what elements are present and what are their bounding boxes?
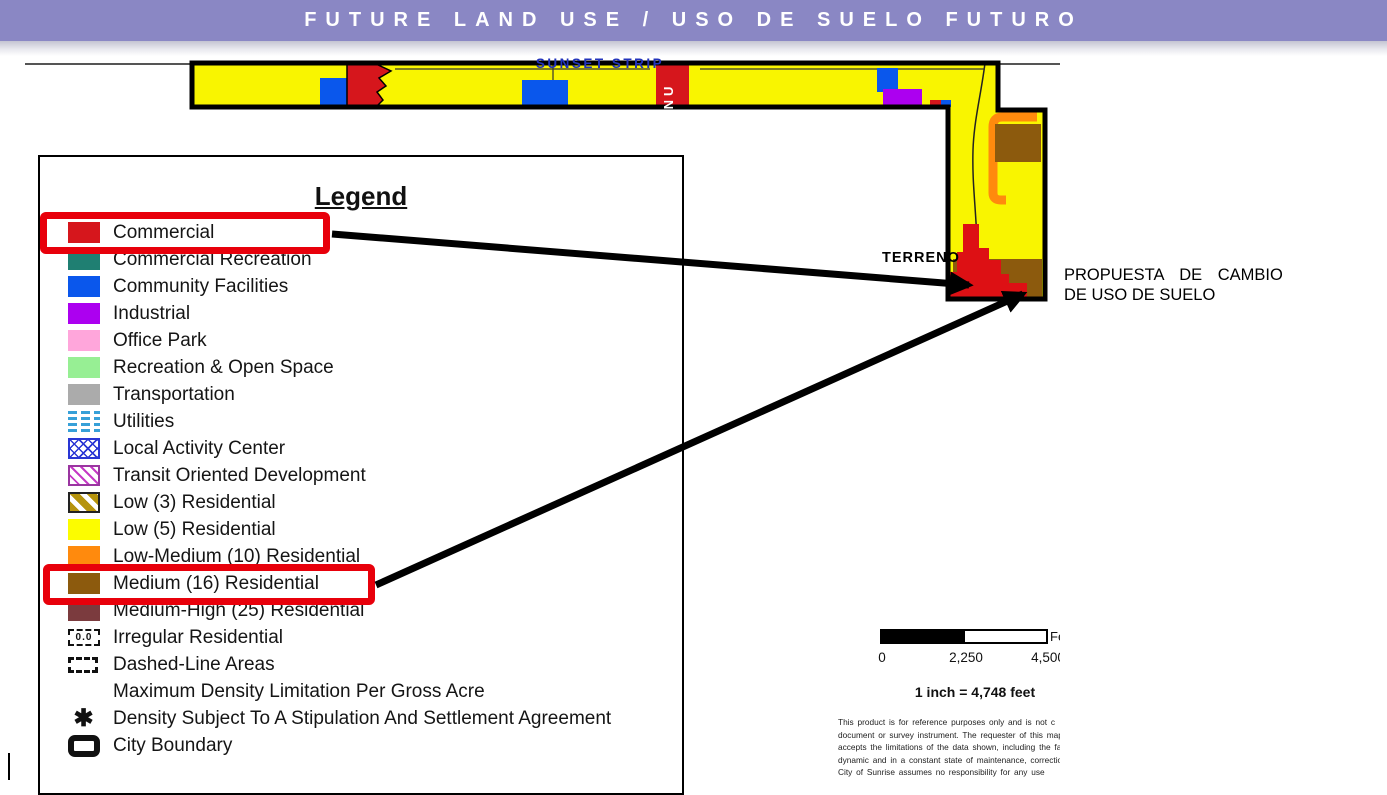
- scale-ratio-text: 1 inch = 4,748 feet: [915, 684, 1035, 700]
- legend-item: Transit Oriented Development: [68, 462, 682, 489]
- map-patch-commercial: [930, 100, 941, 107]
- solid-swatch-icon: [68, 303, 100, 324]
- solid-swatch-icon: [68, 519, 100, 540]
- scalebar-tick: 2,250: [949, 650, 983, 665]
- legend-item: Industrial: [68, 300, 682, 327]
- legend-item-label: Dashed-Line Areas: [113, 654, 275, 676]
- legend-item-label: Utilities: [113, 411, 174, 433]
- map-patch-community: [522, 80, 568, 107]
- legend-item: Low (5) Residential: [68, 516, 682, 543]
- legend-item-label: Transportation: [113, 384, 235, 406]
- legend-items: CommercialCommercial RecreationCommunity…: [40, 219, 682, 759]
- header-banner: FUTURE LAND USE / USO DE SUELO FUTURO: [0, 0, 1387, 41]
- asterisk-swatch-icon: ✱: [68, 708, 100, 729]
- scalebar-tick: 0: [878, 650, 886, 665]
- legend-item-label: Industrial: [113, 303, 190, 325]
- legend-item: Community Facilities: [68, 273, 682, 300]
- scalebar: [880, 629, 1048, 644]
- legend-item-label: Local Activity Center: [113, 438, 285, 460]
- street-label: SUNSET STRIP: [536, 56, 664, 71]
- legend-item-label: Recreation & Open Space: [113, 357, 334, 379]
- map-road-orange: [993, 117, 1037, 200]
- header-shadow: [0, 41, 1387, 56]
- legend-item: Transportation: [68, 381, 682, 408]
- legend-item: Office Park: [68, 327, 682, 354]
- lac-swatch-icon: [68, 438, 100, 459]
- proposal-line1: PROPUESTA DE CAMBIO: [1064, 265, 1299, 285]
- disclaimer-line: document or survey instrument. The reque…: [838, 729, 1060, 742]
- legend-item: ✱Density Subject To A Stipulation And Se…: [68, 705, 682, 732]
- legend-item: Utilities: [68, 408, 682, 435]
- map-patch-commercial: [347, 63, 391, 107]
- solid-swatch-icon: [68, 357, 100, 378]
- legend-item-label: Maximum Density Limitation Per Gross Acr…: [113, 681, 485, 703]
- legend-item-label: Transit Oriented Development: [113, 465, 366, 487]
- tod-swatch-icon: [68, 465, 100, 486]
- terreno-label: TERRENO: [882, 250, 960, 266]
- legend-item-label: Density Subject To A Stipulation And Set…: [113, 708, 611, 730]
- legend-item: 0.0Irregular Residential: [68, 624, 682, 651]
- map-patch-commercial-terreno: [949, 224, 1027, 297]
- disclaimer-line: dynamic and in a constant state of maint…: [838, 754, 1060, 767]
- map-patch-community: [941, 100, 951, 107]
- disclaimer-line: City of Sunrise assumes no responsibilit…: [838, 766, 1060, 779]
- map-patch-medium16: [953, 259, 1042, 298]
- map-patch-community: [877, 68, 898, 92]
- legend-item-label: Irregular Residential: [113, 627, 283, 649]
- legend-item-label: Low (3) Residential: [113, 492, 276, 514]
- legend-item: Dashed-Line Areas: [68, 651, 682, 678]
- road-line: [973, 63, 985, 262]
- scalebar-filled-segment: [882, 631, 965, 642]
- highlight-box-medium16: [43, 564, 375, 605]
- highlight-box-commercial: [40, 212, 330, 254]
- map-patch-medium16: [995, 124, 1041, 162]
- low3-swatch-icon: [68, 492, 100, 513]
- legend-item: Recreation & Open Space: [68, 354, 682, 381]
- disclaimer-line: This product is for reference purposes o…: [838, 716, 1060, 729]
- legend-item: Maximum Density Limitation Per Gross Acr…: [68, 678, 682, 705]
- page-edge-mark: [8, 753, 10, 780]
- page-title: FUTURE LAND USE / USO DE SUELO FUTURO: [304, 9, 1083, 32]
- scalebar-tick: 4,500: [1031, 650, 1060, 665]
- scalebar-block: Feet 0 2,250 4,500 1 inch = 4,748 feet T…: [836, 624, 1060, 780]
- legend-item: Local Activity Center: [68, 435, 682, 462]
- irregular-swatch-icon: 0.0: [68, 629, 100, 646]
- legend-item: Low (3) Residential: [68, 489, 682, 516]
- legend-item-label: Office Park: [113, 330, 207, 352]
- map-patch-community: [320, 78, 347, 106]
- proposal-line2: DE USO DE SUELO: [1064, 285, 1299, 305]
- solid-swatch-icon: [68, 384, 100, 405]
- road-shield-label: NU: [661, 83, 676, 110]
- map-patch-commercial: [656, 63, 689, 107]
- slide: { "header": { "title": "FUTURE LAND USE …: [0, 0, 1387, 780]
- solid-swatch-icon: [68, 276, 100, 297]
- solid-swatch-icon: [68, 330, 100, 351]
- disclaimer-line: accepts the limitations of the data show…: [838, 741, 1060, 754]
- dashed-swatch-icon: [68, 657, 98, 673]
- legend-item-label: City Boundary: [113, 735, 232, 757]
- utilities-swatch-icon: [68, 411, 100, 432]
- disclaimer-text: This product is for reference purposes o…: [838, 716, 1060, 779]
- legend-title: Legend: [40, 181, 682, 211]
- scalebar-unit-label: Feet: [1050, 629, 1060, 644]
- cityboundary-swatch-icon: [68, 735, 100, 757]
- map-patch-industrial: [883, 89, 922, 106]
- legend-item-label: Low (5) Residential: [113, 519, 276, 541]
- legend-item: City Boundary: [68, 732, 682, 759]
- proposal-note: PROPUESTA DE CAMBIO DE USO DE SUELO: [1064, 265, 1299, 305]
- legend-item-label: Community Facilities: [113, 276, 288, 298]
